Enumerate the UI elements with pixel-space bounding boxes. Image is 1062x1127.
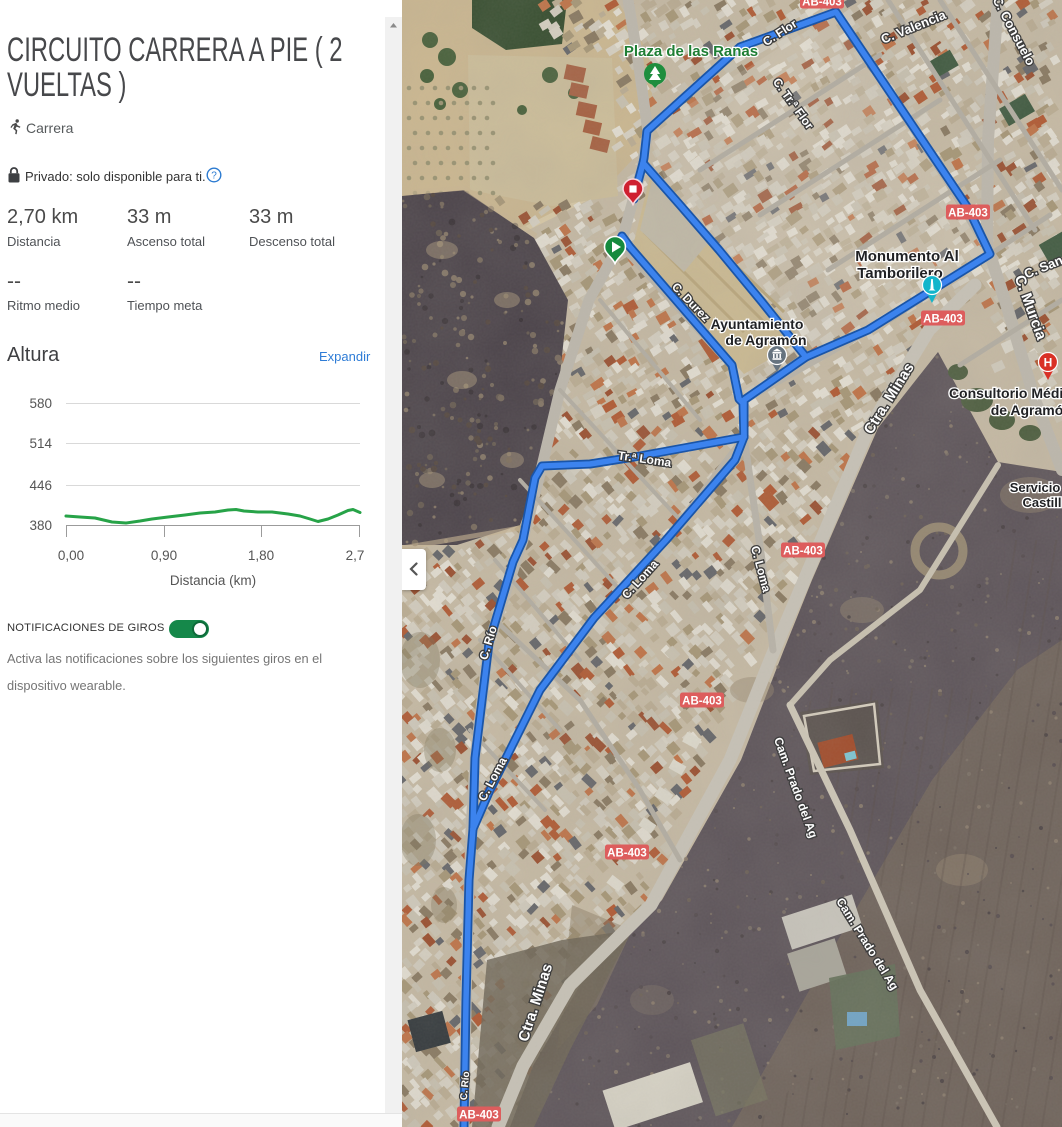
svg-text:2,7: 2,7 <box>346 548 365 563</box>
svg-text:0,90: 0,90 <box>151 548 177 563</box>
svg-text:0,00: 0,00 <box>58 548 84 563</box>
svg-text:Distancia (km): Distancia (km) <box>170 573 256 588</box>
svg-text:380: 380 <box>29 518 52 533</box>
svg-text:H: H <box>1044 356 1053 370</box>
svg-text:514: 514 <box>29 436 52 451</box>
svg-text:1,80: 1,80 <box>248 548 274 563</box>
svg-text:?: ? <box>211 171 217 182</box>
svg-text:446: 446 <box>29 478 52 493</box>
svg-text:580: 580 <box>29 396 52 411</box>
